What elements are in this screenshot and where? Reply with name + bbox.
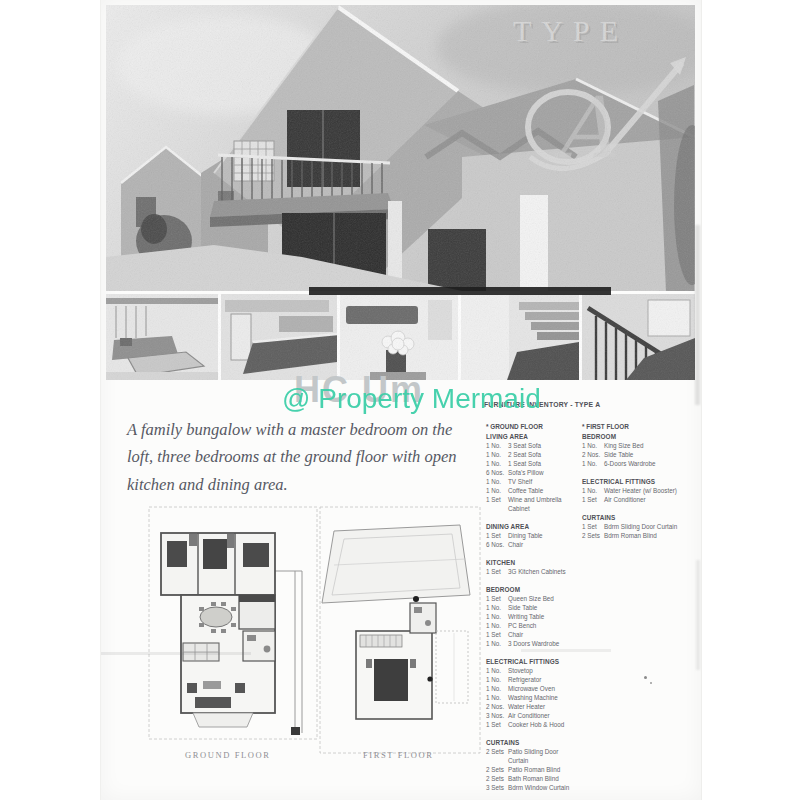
scan-artifact [644, 676, 647, 679]
item-label: 3 Doors Wardrobe [508, 639, 578, 648]
item-qty: 3 Nos. [486, 711, 508, 720]
scan-artifact [695, 225, 700, 405]
item-qty: 1 No. [582, 459, 604, 468]
item-label: Bdrm Window Curtain [508, 783, 578, 792]
scan-speck [427, 676, 432, 681]
inventory-section: ELECTRICAL FITTINGS1 No.Stovetop1 No.Ref… [486, 657, 578, 729]
interior-strip-svg [106, 294, 695, 380]
inventory-item: 1 SetBdrm Sliding Door Curtain [582, 522, 696, 531]
item-qty: 1 No. [486, 450, 508, 459]
scan-grain [106, 5, 695, 291]
inventory-item: 6 Nos.Sofa's Pillow [486, 468, 578, 477]
item-label: 2 Seat Sofa [508, 450, 578, 459]
ground-floor-plan-svg [143, 503, 328, 748]
inventory-item: 6 Nos.Chair [486, 540, 578, 549]
item-qty: 2 Sets [582, 531, 604, 540]
item-label: Cooker Hob & Hood [508, 720, 578, 729]
roof-outline [322, 525, 470, 603]
inventory-section: BEDROOM1 No.King Size Bed2 Nos.Side Tabl… [582, 432, 696, 468]
bed-2 [203, 539, 227, 569]
item-label: 3 Seat Sofa [508, 441, 578, 450]
item-qty: 2 Sets [486, 774, 508, 783]
inventory-section-title: CURTAINS [486, 738, 578, 747]
inventory-item: 3 SetsBdrm Window Curtain [486, 783, 578, 792]
scan-artifact [696, 560, 700, 670]
item-label: Writing Table [508, 612, 578, 621]
scan-speck [413, 596, 419, 602]
scanned-page: TYPE TYPE A [100, 0, 702, 800]
item-label: Water Heater (w/ Booster) [604, 486, 696, 495]
item-qty: 1 Set [486, 567, 508, 576]
item-label: Chair [508, 540, 578, 549]
item-label: Coffee Table [508, 486, 578, 495]
item-label: Bath Roman Blind [508, 774, 578, 783]
item-qty: 6 Nos. [486, 468, 508, 477]
item-label: 6-Doors Wardrobe [604, 459, 696, 468]
item-label: Sofa's Pillow [508, 468, 578, 477]
item-qty: 1 No. [486, 666, 508, 675]
inventory-section: LIVING AREA1 No.3 Seat Sofa1 No.2 Seat S… [486, 432, 578, 513]
item-label: Air Conditioner [604, 495, 696, 504]
item-label: Refrigerator [508, 675, 578, 684]
ground-floor-plan-label: GROUND FLOOR [185, 750, 271, 760]
item-qty: 1 No. [582, 486, 604, 495]
item-qty: 1 No. [486, 459, 508, 468]
inventory-item: 1 No.Refrigerator [486, 675, 578, 684]
master-bedroom [356, 631, 432, 719]
inventory-section-title: BEDROOM [486, 585, 578, 594]
watermark-scan-text: HC Um [294, 369, 424, 411]
inventory-item: 2 SetsPatio Roman Blind [486, 765, 578, 774]
inventory-item: 1 No.3 Seat Sofa [486, 441, 578, 450]
inventory-item: 1 SetCooker Hob & Hood [486, 720, 578, 729]
inventory-item: 1 SetAir Conditioner [582, 495, 696, 504]
ground-floor-plan [143, 503, 328, 752]
inventory-item: 2 Nos.Water Heater [486, 702, 578, 711]
inventory-section: ELECTRICAL FITTINGS1 No.Water Heater (w/… [582, 477, 696, 504]
inventory-item: 2 SetsBdrm Roman Blind [582, 531, 696, 540]
inventory-item: 2 SetsPatio Sliding Door Curtain [486, 747, 578, 765]
item-label: Stovetop [508, 666, 578, 675]
item-label: Bdrm Sliding Door Curtain [604, 522, 696, 531]
inventory-section: CURTAINS2 SetsPatio Sliding Door Curtain… [486, 738, 578, 792]
inventory-section-title: KITCHEN [486, 558, 578, 567]
inventory-section: DINING AREA1 SetDining Table6 Nos.Chair [486, 522, 578, 549]
inventory-item: 1 No.Writing Table [486, 612, 578, 621]
item-label: Patio Roman Blind [508, 765, 578, 774]
inventory-item: 2 Nos.Side Table [582, 450, 696, 459]
inventory-item: 1 SetDining Table [486, 531, 578, 540]
interior-photo-strip [106, 294, 695, 380]
inventory-section-title: ELECTRICAL FITTINGS [486, 657, 578, 666]
inventory-item: 3 Nos.Air Conditioner [486, 711, 578, 720]
item-qty: 1 Set [486, 720, 508, 729]
inventory-title: FURNITURE INVENTORY - TYPE A [484, 401, 600, 408]
item-label: Water Heater [508, 702, 578, 711]
item-qty: 2 Sets [486, 765, 508, 774]
bed-3 [243, 543, 269, 567]
item-qty: 1 Set [582, 522, 604, 531]
master-bed [374, 659, 408, 701]
inventory-section: BEDROOM1 SetQueen Size Bed1 No.Side Tabl… [486, 585, 578, 648]
item-qty: 1 No. [486, 477, 508, 486]
item-label: 3G Kitchen Cabinets [508, 567, 578, 576]
item-qty: 1 No. [486, 486, 508, 495]
inventory-item: 1 No.Side Table [486, 603, 578, 612]
porch [193, 713, 253, 727]
kitchen-counter [183, 643, 219, 661]
item-label: Wine and Umbrella Cabinet [508, 495, 578, 513]
scan-dark-bar [309, 287, 611, 295]
item-label: Patio Sliding Door Curtain [508, 747, 578, 765]
inventory-column-first: BEDROOM1 No.King Size Bed2 Nos.Side Tabl… [582, 432, 696, 549]
bathroom [410, 603, 436, 633]
inventory-item: 1 No.TV Shelf [486, 477, 578, 486]
inventory-item: 1 SetWine and Umbrella Cabinet [486, 495, 578, 513]
item-label: PC Bench [508, 621, 578, 630]
inventory-item: 1 SetQueen Size Bed [486, 594, 578, 603]
item-label: Queen Size Bed [508, 594, 578, 603]
inventory-section-title: CURTAINS [582, 513, 696, 522]
item-qty: 1 Set [486, 630, 508, 639]
item-qty: 1 Set [582, 495, 604, 504]
inventory-section-title: ELECTRICAL FITTINGS [582, 477, 696, 486]
inventory-item: 1 Set3G Kitchen Cabinets [486, 567, 578, 576]
inventory-section-title: DINING AREA [486, 522, 578, 531]
item-label: Air Conditioner [508, 711, 578, 720]
house-render-svg: TYPE TYPE A [106, 5, 695, 291]
inventory-item: 1 No.PC Bench [486, 621, 578, 630]
gate-post [291, 727, 300, 735]
first-floor-plan [314, 503, 486, 765]
inventory-section: KITCHEN1 Set3G Kitchen Cabinets [486, 558, 578, 576]
inventory-item: 1 SetChair [486, 630, 578, 639]
item-qty: 2 Sets [486, 747, 508, 765]
balcony-outline [436, 631, 468, 703]
item-label: Dining Table [508, 531, 578, 540]
bed-1 [167, 541, 187, 567]
item-qty: 1 No. [582, 441, 604, 450]
inventory-item: 1 No.3 Doors Wardrobe [486, 639, 578, 648]
description-text: A family bungalow with a master bedroom … [127, 416, 479, 499]
inventory-item: 1 No.6-Doors Wardrobe [582, 459, 696, 468]
first-floor-header: * FIRST FLOOR [582, 423, 629, 430]
inventory-item: 1 No.1 Seat Sofa [486, 459, 578, 468]
inventory-section-title: LIVING AREA [486, 432, 578, 441]
item-qty: 2 Nos. [486, 702, 508, 711]
house-exterior-photo: TYPE TYPE A [106, 5, 695, 291]
inventory-item: 1 No.Water Heater (w/ Booster) [582, 486, 696, 495]
inventory-item: 1 No.King Size Bed [582, 441, 696, 450]
item-qty: 2 Nos. [582, 450, 604, 459]
item-qty: 1 No. [486, 693, 508, 702]
scan-artifact [650, 682, 652, 684]
inventory-item: 1 No.Coffee Table [486, 486, 578, 495]
item-qty: 1 No. [486, 612, 508, 621]
ground-floor-header: * GROUND FLOOR [486, 423, 543, 430]
item-qty: 1 No. [486, 684, 508, 693]
item-qty: 1 No. [486, 603, 508, 612]
inventory-column-ground: LIVING AREA1 No.3 Seat Sofa1 No.2 Seat S… [486, 432, 578, 800]
inventory-section-title: BEDROOM [582, 432, 696, 441]
item-label: Chair [508, 630, 578, 639]
item-label: 1 Seat Sofa [508, 459, 578, 468]
item-label: Microwave Oven [508, 684, 578, 693]
inventory-item: 1 No.Microwave Oven [486, 684, 578, 693]
item-qty: 1 No. [486, 675, 508, 684]
inventory-item: 2 SetsBath Roman Blind [486, 774, 578, 783]
item-qty: 1 Set [486, 594, 508, 603]
first-floor-plan-label: FIRST FLOOR [363, 750, 434, 760]
item-label: Bdrm Roman Blind [604, 531, 696, 540]
item-qty: 1 Set [486, 495, 508, 513]
item-label: Side Table [604, 450, 696, 459]
inventory-item: 1 No.Stovetop [486, 666, 578, 675]
item-label: TV Shelf [508, 477, 578, 486]
item-qty: 1 Set [486, 531, 508, 540]
inventory-item: 1 No.Washing Machine [486, 693, 578, 702]
item-qty: 3 Sets [486, 783, 508, 792]
item-qty: 1 No. [486, 639, 508, 648]
inventory-item: 1 No.2 Seat Sofa [486, 450, 578, 459]
item-label: Side Table [508, 603, 578, 612]
item-qty: 6 Nos. [486, 540, 508, 549]
inventory-section: CURTAINS1 SetBdrm Sliding Door Curtain2 … [582, 513, 696, 540]
item-qty: 1 No. [486, 621, 508, 630]
item-qty: 1 No. [486, 441, 508, 450]
item-label: King Size Bed [604, 441, 696, 450]
first-floor-plan-svg [314, 503, 486, 761]
item-label: Washing Machine [508, 693, 578, 702]
